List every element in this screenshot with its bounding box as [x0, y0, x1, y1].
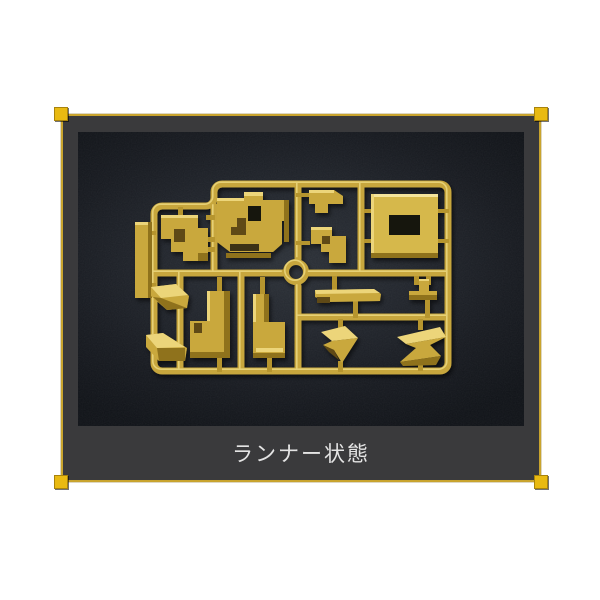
sprue-image — [78, 132, 524, 426]
product-photo — [78, 132, 524, 426]
caption-bar: ランナー状態 — [63, 428, 539, 480]
product-image-panel: ランナー状態 — [61, 114, 541, 482]
part-square-plate — [371, 194, 438, 258]
part-slab — [135, 222, 152, 298]
part-blade — [315, 289, 381, 303]
caption-text: ランナー状態 — [232, 444, 370, 465]
corner-marker-top-left — [54, 107, 68, 121]
corner-marker-top-right — [534, 107, 548, 121]
